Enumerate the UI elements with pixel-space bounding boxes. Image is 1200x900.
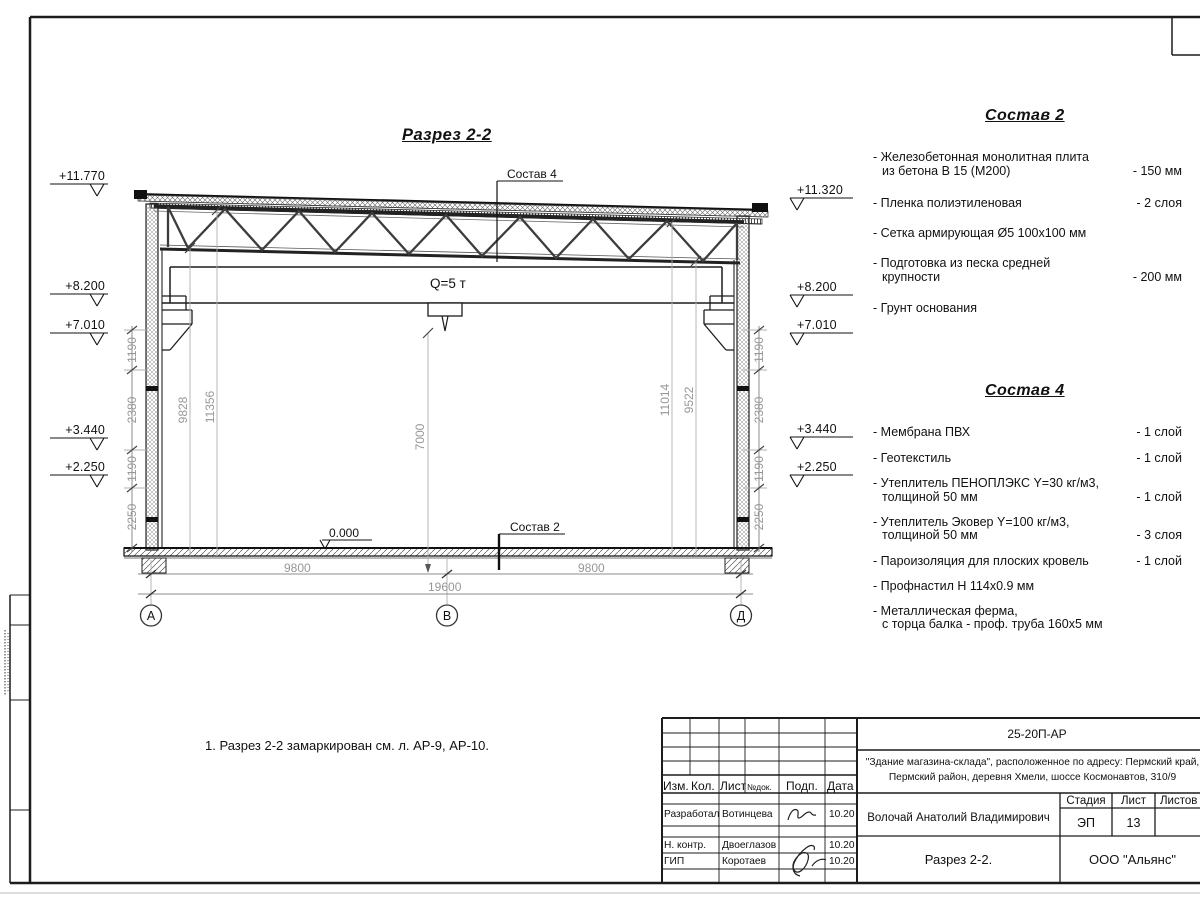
signature-row1 [788, 809, 816, 820]
roof-truss [154, 206, 744, 263]
dim-interior-7000: 7000 [413, 424, 427, 451]
sostav4-item4-value: - 3 слоя [1082, 528, 1182, 542]
titleblock-row2-role: Н. контр. [664, 840, 706, 851]
signature-row23 [793, 846, 826, 876]
sostav2-item4-line2: крупности [882, 270, 940, 284]
sostav2-item4-line1: - Подготовка из песка средней [873, 256, 1050, 270]
titleblock-company: ООО "Альянс" [1060, 852, 1200, 867]
titleblock-approver: Волочай Анатолий Владимирович [857, 812, 1060, 824]
sostav2-item3-line1: - Сетка армирующая Ø5 100х100 мм [873, 226, 1086, 240]
sostav4-item2-value: - 1 слой [1082, 451, 1182, 465]
drawing-sheet: Разрез 2-2 Q=5 т Состав 4 Состав 2 0.000… [0, 0, 1200, 900]
elevation-right-2: +8.200 [797, 280, 837, 294]
titleblock-row3-name: Коротаев [722, 856, 766, 867]
sostav4-item1-value: - 1 слой [1082, 425, 1182, 439]
titleblock-col-data: Дата [827, 779, 854, 793]
titleblock-col-list: Лист [720, 779, 746, 793]
sostav4-item6-line1: - Профнастил Н 114х0.9 мм [873, 579, 1034, 593]
sostav4-item7-line1: - Металлическая ферма, [873, 604, 1018, 618]
elevation-left-5: +2.250 [40, 460, 105, 474]
signatures [788, 809, 826, 876]
elevation-right-1: +11.320 [797, 183, 843, 197]
elevation-left-4: +3.440 [40, 423, 105, 437]
dim-right-2380: 2380 [752, 397, 766, 424]
elevation-right-4: +3.440 [797, 422, 837, 436]
titleblock-row1-date: 10.20 [829, 809, 855, 820]
titleblock-row2-name: Двоеглазов [722, 840, 776, 851]
elevation-marks [50, 184, 853, 549]
callout-leaders [497, 181, 565, 570]
titleblock-doc-number: 25-20П-АР [857, 727, 1200, 741]
sostav4-item3-line1: - Утеплитель ПЕНОПЛЭКС Y=30 кг/м3, [873, 476, 1099, 490]
axis-bubble-d: Д [730, 609, 752, 623]
sostav2-heading: Состав 2 [985, 107, 1065, 125]
dim-right-1190b: 1190 [752, 456, 766, 482]
floor-slab [124, 548, 772, 573]
axis-bubble-b: В [436, 609, 458, 623]
titleblock-row1-role: Разработал [664, 809, 719, 820]
dim-bottom-right: 9800 [578, 561, 605, 575]
sostav4-item3-line2: толщиной 50 мм [882, 490, 978, 504]
section-title: Разрез 2-2 [402, 126, 492, 145]
sostav4-item3-value: - 1 слой [1082, 490, 1182, 504]
side-dim-chains [124, 326, 767, 552]
titleblock-row2-date: 10.20 [829, 840, 855, 851]
sostav4-item5-value: - 1 слой [1082, 554, 1182, 568]
dim-bottom-left: 9800 [284, 561, 311, 575]
titleblock-stage-value: ЭП [1060, 816, 1112, 830]
titleblock-row1-name: Вотинцева [722, 809, 773, 820]
dim-right-2250: 2250 [752, 504, 766, 531]
sostav2-item1-value: - 150 мм [1082, 164, 1182, 178]
titleblock-sheet-label: Лист [1112, 795, 1155, 807]
sostav4-item2-line1: - Геотекстиль [873, 451, 951, 465]
titleblock-row3-role: ГИП [664, 856, 684, 867]
elevation-left-1: +11.770 [40, 169, 105, 183]
titleblock-project-line2: Пермский район, деревня Хмели, шоссе Кос… [860, 772, 1200, 783]
elevation-right-5: +2.250 [797, 460, 837, 474]
sostav2-item2-line1: - Пленка полиэтиленовая [873, 196, 1022, 210]
crane-capacity-label: Q=5 т [430, 276, 466, 291]
dim-interior-11356: 11356 [203, 391, 217, 423]
titleblock-col-izm: Изм. [663, 779, 689, 793]
dim-right-1190a: 1190 [752, 337, 766, 363]
elevation-left-2: +8.200 [40, 279, 105, 293]
callout-floor-composition: Состав 2 [510, 520, 560, 534]
sostav2-item4-value: - 200 мм [1082, 270, 1182, 284]
dim-left-2380: 2380 [125, 397, 139, 424]
sostav4-item5-line1: - Пароизоляция для плоских кровель [873, 554, 1089, 568]
elevation-right-3: +7.010 [797, 318, 837, 332]
sostav4-item4-line2: толщиной 50 мм [882, 528, 978, 542]
dim-interior-11014: 11014 [658, 384, 672, 416]
sostav4-heading: Состав 4 [985, 382, 1065, 400]
titleblock-project-line1: "Здание магазина-склада", расположенное … [860, 757, 1200, 768]
titleblock-drawing-name: Разрез 2-2. [857, 852, 1060, 867]
elevation-left-3: +7.010 [40, 318, 105, 332]
titleblock-sheets-label: Листов [1160, 795, 1197, 807]
sostav2-item5-line1: - Грунт основания [873, 301, 977, 315]
titleblock-col-podp: Подп. [786, 779, 818, 793]
sostav2-item1-line1: - Железобетонная монолитная плита [873, 150, 1089, 164]
dim-left-1190b: 1190 [125, 456, 139, 482]
dim-interior-9522: 9522 [682, 387, 696, 414]
callout-roof-composition: Состав 4 [507, 167, 557, 181]
sostav2-item1-line2: из бетона В 15 (М200) [882, 164, 1010, 178]
zero-level-label: 0.000 [329, 526, 359, 540]
sostav4-item1-line1: - Мембрана ПВХ [873, 425, 970, 439]
dim-interior-9828: 9828 [176, 397, 190, 424]
titleblock-col-kol: Кол. [691, 779, 715, 793]
dim-bottom-total: 19600 [428, 580, 461, 594]
axis-bubble-a: А [140, 609, 162, 623]
titleblock-row3-date: 10.20 [829, 856, 855, 867]
dim-left-2250: 2250 [125, 504, 139, 531]
sostav2-item2-value: - 2 слоя [1082, 196, 1182, 210]
titleblock-col-ndok: №док. [747, 782, 772, 792]
sostav4-item4-line1: - Утеплитель Эковер Y=100 кг/м3, [873, 515, 1069, 529]
drawing-note: 1. Разрез 2-2 замаркирован см. л. АР-9, … [205, 738, 489, 753]
sostav4-item7-line2: с торца балка - проф. труба 160х5 мм [882, 617, 1103, 631]
dim-left-1190a: 1190 [125, 337, 139, 363]
titleblock-stage-label: Стадия [1060, 795, 1112, 807]
titleblock-sheet-value: 13 [1112, 816, 1155, 830]
